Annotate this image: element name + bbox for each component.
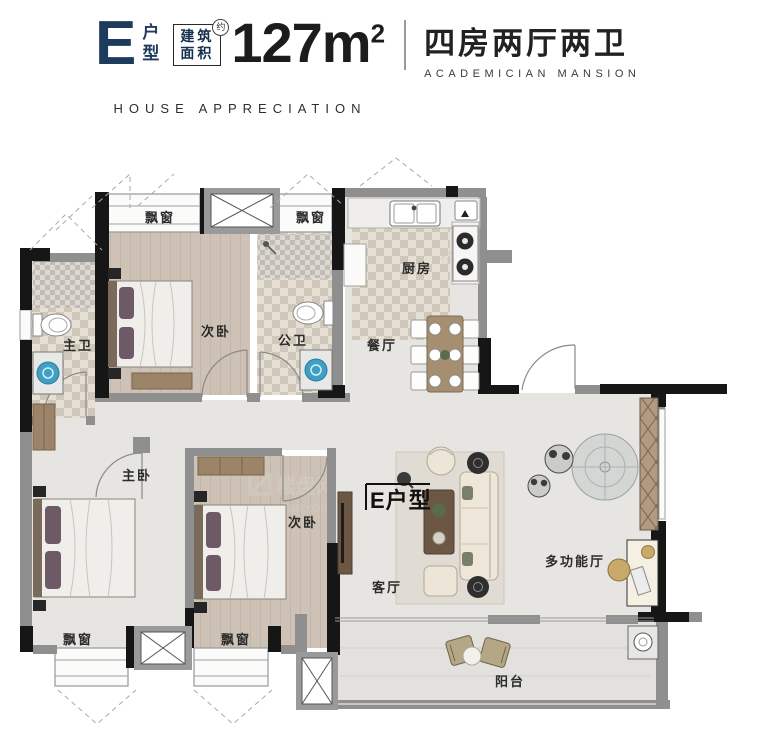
dining-set bbox=[411, 316, 479, 392]
label-master-bath: 主卫 bbox=[63, 338, 93, 353]
sink-icon bbox=[390, 201, 440, 226]
floorplan-page: E 户 型 建筑 面积 约 127m2 四房两厅两卫 ACADEMICIAN M… bbox=[0, 0, 757, 739]
label-master-bedroom: 主卧 bbox=[122, 468, 152, 483]
label-bay-window-bottom-left: 飘窗 bbox=[63, 632, 93, 647]
label-kitchen: 厨房 bbox=[402, 261, 432, 276]
shaft-balcony bbox=[296, 652, 338, 710]
label-bedroom-second: 次卧 bbox=[288, 515, 318, 530]
label-bay-window-top-left: 飘窗 bbox=[145, 210, 175, 225]
label-bay-window-top-right: 飘窗 bbox=[296, 210, 326, 225]
shaft-top bbox=[204, 188, 280, 234]
label-multi-hall: 多功能厅 bbox=[545, 554, 605, 569]
label-plan-tag: E户型 bbox=[370, 488, 432, 513]
label-dining: 餐厅 bbox=[366, 338, 397, 353]
label-bedroom-top: 次卧 bbox=[201, 324, 231, 339]
label-balcony: 阳台 bbox=[495, 674, 525, 689]
floor-plan: 楼盘网 LouPan.com 楼盘网 bbox=[0, 0, 757, 739]
label-bay-window-bottom-right: 飘窗 bbox=[221, 632, 251, 647]
washer-icon bbox=[300, 350, 332, 390]
label-public-bath: 公卫 bbox=[278, 333, 308, 348]
shaft-bottom bbox=[134, 626, 192, 670]
washer-icon bbox=[628, 626, 658, 659]
washer-icon bbox=[33, 352, 63, 394]
label-living: 客厅 bbox=[372, 580, 402, 595]
